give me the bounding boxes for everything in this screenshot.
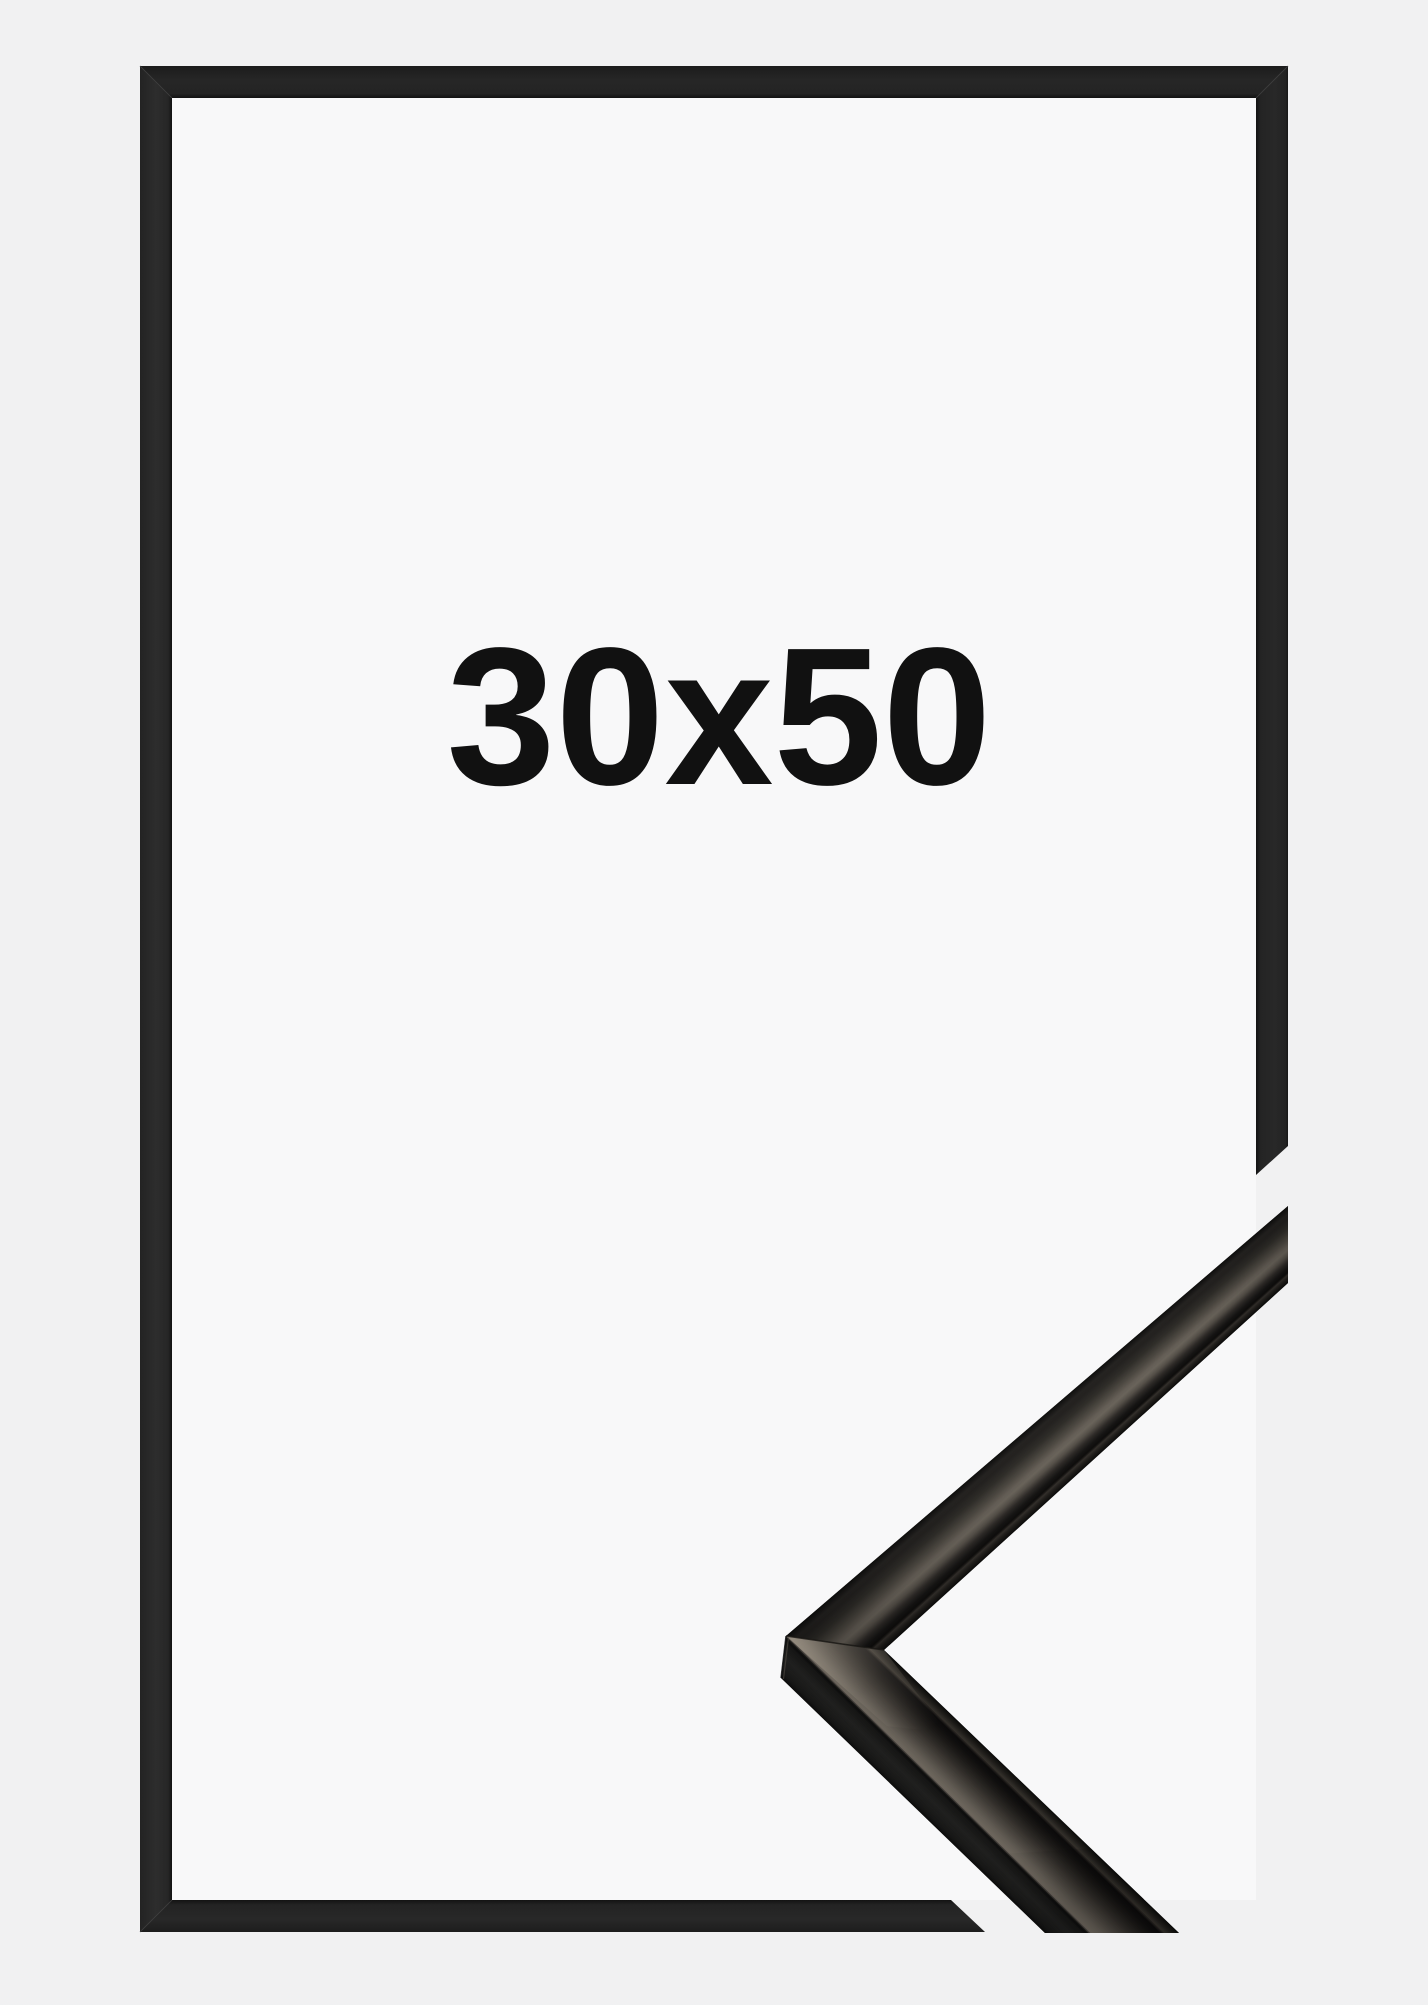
svg-text:30x50: 30x50 [446,607,991,826]
